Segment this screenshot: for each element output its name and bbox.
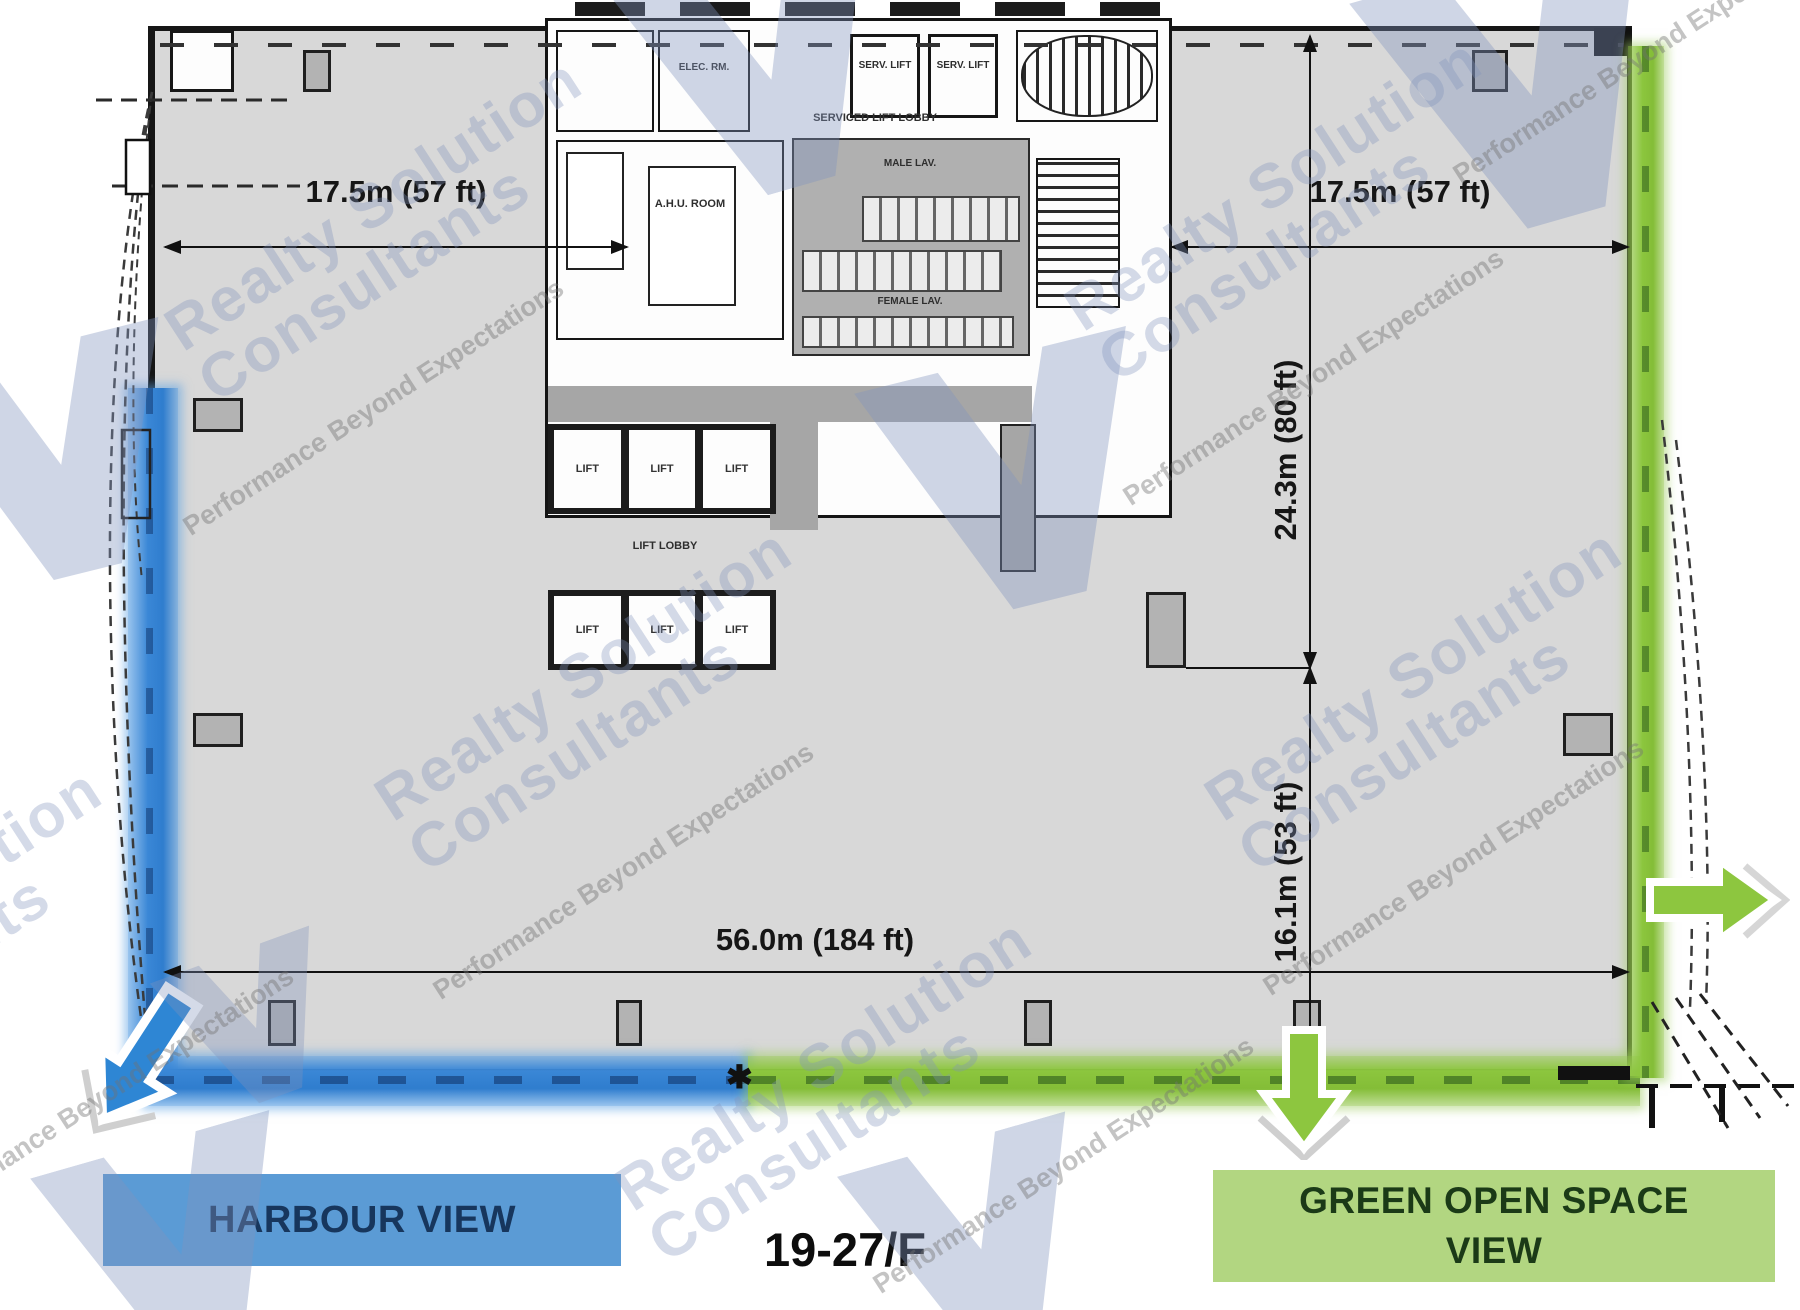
green-view-label-line1: GREEN OPEN SPACE xyxy=(1299,1180,1689,1221)
lift-lobby-label: LIFT LOBBY xyxy=(590,540,740,553)
green-view-label-box: GREEN OPEN SPACE VIEW xyxy=(1213,1170,1775,1282)
floor-number-label: 19-27/F xyxy=(690,1222,1000,1277)
floor-plan-page: ELEC. RM. SERV. LIFT SERV. LIFT SERVICED… xyxy=(0,0,1800,1310)
serviced-lift-lobby-label: SERVICED LIFT LOBBY xyxy=(755,112,995,125)
harbour-view-label-box: HARBOUR VIEW xyxy=(103,1174,621,1266)
lift-6: LIFT xyxy=(701,594,772,666)
strip-junction-marker: ✱ xyxy=(726,1058,753,1096)
core-corridor xyxy=(548,386,1032,422)
column xyxy=(193,398,243,432)
lift-2: LIFT xyxy=(627,428,698,510)
column xyxy=(268,1000,296,1046)
lift-bank-upper: LIFT LIFT LIFT xyxy=(548,424,776,514)
top-right-corner-block xyxy=(1594,28,1632,56)
green-view-strip-bottom xyxy=(748,1056,1640,1106)
service-lift-1-label: SERV. LIFT xyxy=(857,60,913,72)
lav-basin-row xyxy=(802,316,1014,348)
dim-line-total-width xyxy=(165,971,1628,973)
green-view-arrow-right xyxy=(1645,848,1790,952)
stairs-top-treads xyxy=(1021,35,1153,117)
column xyxy=(1563,713,1613,756)
service-lift-2 xyxy=(928,34,998,118)
service-lift-2-label: SERV. LIFT xyxy=(935,60,991,72)
dim-text-lower-depth: 16.1m (53 ft) xyxy=(1268,712,1304,1032)
dim-text-core-depth: 24.3m (80 ft) xyxy=(1268,290,1304,610)
lift-bank-lower: LIFT LIFT LIFT xyxy=(548,590,776,670)
stairs-top xyxy=(1016,30,1158,122)
core-room-pantry xyxy=(556,30,654,132)
core-corridor-right-stub xyxy=(1000,424,1036,572)
riser-column xyxy=(1146,592,1186,668)
male-lav-label: MALE LAV. xyxy=(820,158,1000,170)
stairs-right xyxy=(1036,158,1120,308)
column xyxy=(1024,1000,1052,1046)
column xyxy=(193,713,243,747)
column xyxy=(616,1000,642,1046)
elec-room-label: ELEC. RM. xyxy=(666,62,742,74)
lift-1: LIFT xyxy=(552,428,623,510)
lift-4: LIFT xyxy=(552,594,623,666)
dim-tick-line xyxy=(1186,667,1309,669)
male-lav-stalls xyxy=(862,196,1020,242)
column xyxy=(1472,50,1508,92)
lift-3: LIFT xyxy=(701,428,772,510)
dim-line-wing-left xyxy=(165,246,627,248)
green-view-arrow-down xyxy=(1248,1026,1360,1160)
core-corridor-stub xyxy=(770,422,818,530)
green-view-label-line2: VIEW xyxy=(1446,1230,1543,1271)
dim-line-lower-depth xyxy=(1309,668,1311,1070)
harbour-view-strip-bottom xyxy=(146,1056,748,1106)
dim-line-wing-right xyxy=(1172,246,1628,248)
lift-5: LIFT xyxy=(627,594,698,666)
harbour-view-arrow xyxy=(58,980,218,1150)
top-left-notch xyxy=(170,30,234,92)
column xyxy=(303,50,331,92)
female-lav-label: FEMALE LAV. xyxy=(820,296,1000,308)
female-lav-stalls xyxy=(802,250,1002,292)
ahu-unit-2 xyxy=(648,166,736,306)
green-view-label: GREEN OPEN SPACE VIEW xyxy=(1299,1176,1689,1276)
dim-text-total-width: 56.0m (184 ft) xyxy=(400,922,1230,958)
dim-line-core-depth xyxy=(1309,36,1311,668)
service-lift-1 xyxy=(850,34,920,118)
harbour-view-label: HARBOUR VIEW xyxy=(208,1199,516,1242)
watermark-logo xyxy=(826,1108,1134,1310)
ahu-room-label: A.H.U. ROOM xyxy=(620,198,760,211)
elec-room xyxy=(658,30,750,132)
dim-text-wing-left: 17.5m (57 ft) xyxy=(166,174,626,210)
dim-text-wing-right: 17.5m (57 ft) xyxy=(1172,174,1628,210)
